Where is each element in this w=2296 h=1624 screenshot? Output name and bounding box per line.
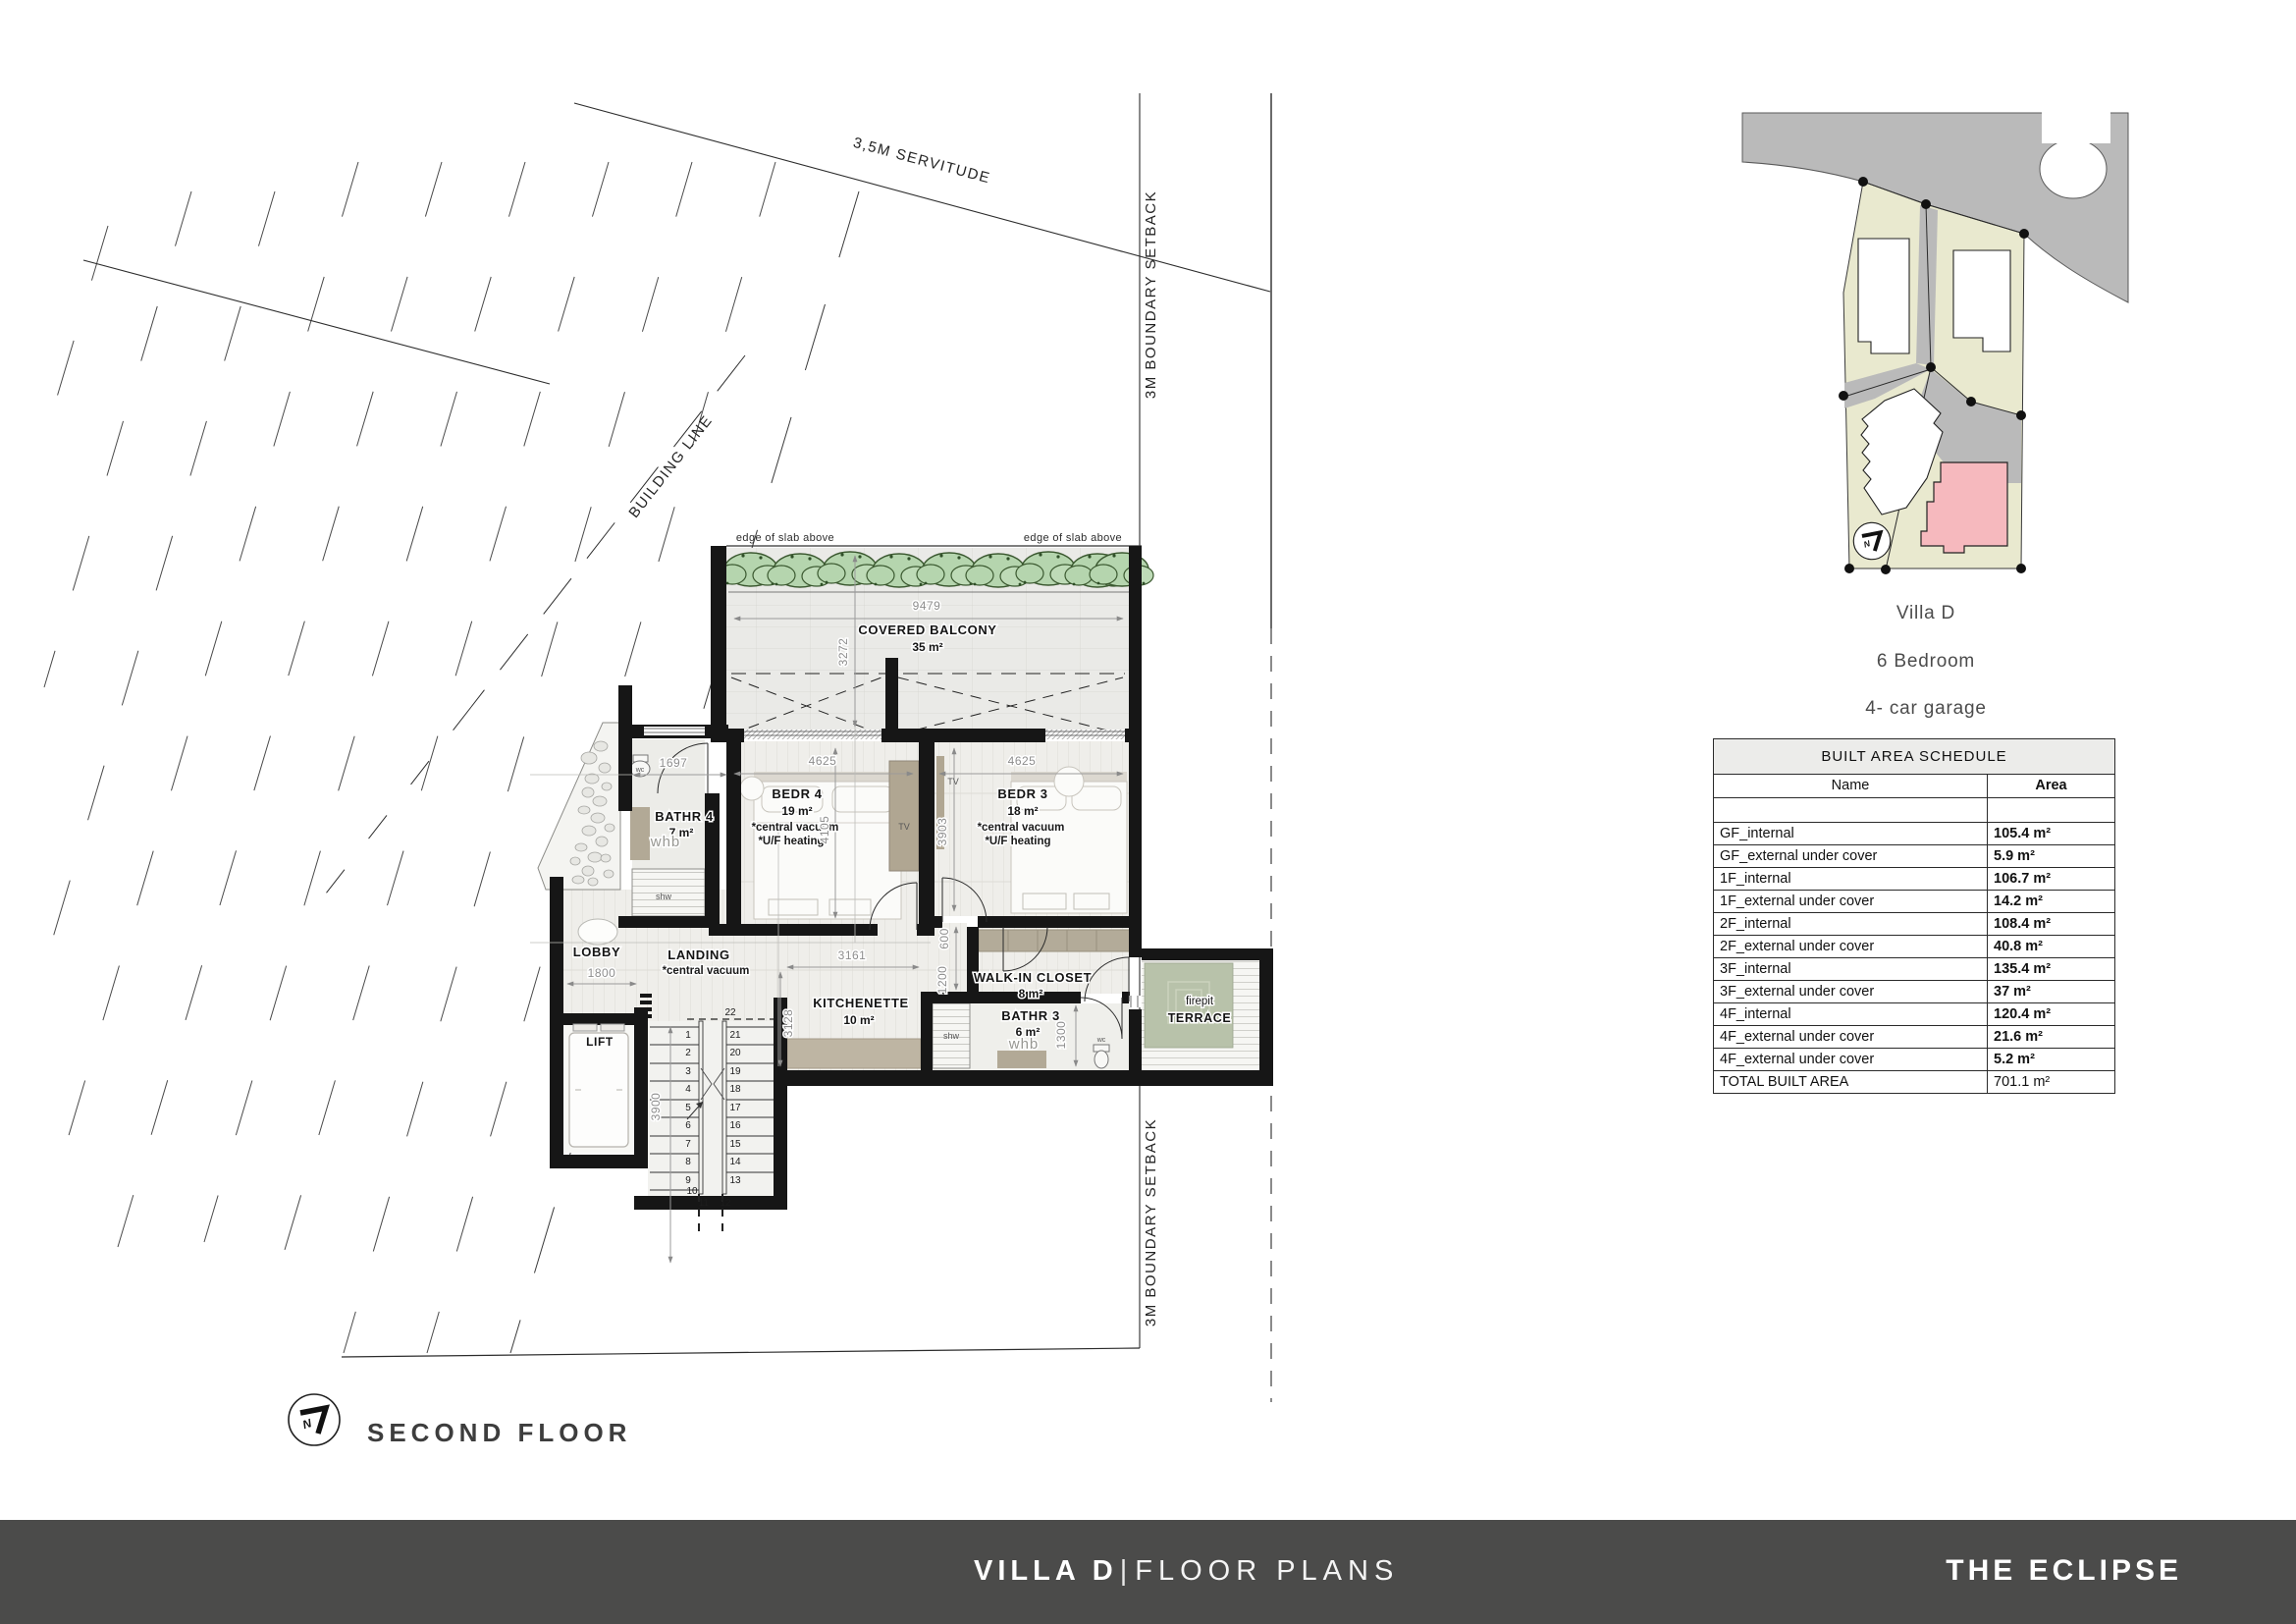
- setback-label-bottom: 3M BOUNDARY SETBACK: [1143, 1118, 1159, 1326]
- svg-text:21: 21: [729, 1030, 741, 1041]
- building-line-label: BUILDING LINE: [625, 412, 716, 521]
- setback-label-top: 3M BOUNDARY SETBACK: [1143, 190, 1159, 399]
- tv-cabinet-bedr4: [889, 761, 919, 871]
- dim-3903: 3903: [935, 818, 949, 846]
- svg-text:7: 7: [685, 1139, 691, 1150]
- bathr3-name: BATHR 3: [1001, 1008, 1060, 1023]
- svg-text:5: 5: [685, 1103, 691, 1113]
- svg-text:3: 3: [685, 1066, 691, 1077]
- landing-note: *central vacuum: [663, 965, 750, 977]
- firepit-terrace: firepit TERRACE: [1142, 960, 1259, 1070]
- footer-section: FLOOR PLANS: [1135, 1555, 1399, 1587]
- site-plan: Villa D 6 Bedroom 4- car garage: [1742, 110, 2128, 719]
- svg-text:10: 10: [686, 1186, 698, 1197]
- stone-wall: [538, 723, 620, 890]
- dim-4105: 4105: [818, 816, 831, 844]
- slab-label-left: edge of slab above: [736, 532, 834, 544]
- svg-text:wc: wc: [635, 767, 645, 774]
- north-arrow-icon: [289, 1394, 340, 1445]
- dim-4625-b3: 4625: [1008, 754, 1037, 768]
- schedule-title: BUILT AREA SCHEDULE: [1714, 739, 2115, 775]
- svg-text:13: 13: [729, 1175, 741, 1186]
- bedr3-name: BEDR 3: [997, 786, 1047, 801]
- table-row: 2F_external under cover40.8 m²: [1714, 936, 2115, 958]
- svg-text:15: 15: [729, 1139, 741, 1150]
- bedr4-name: BEDR 4: [772, 786, 822, 801]
- lobby-basin: [578, 919, 617, 945]
- bedr3-tv: TV: [947, 777, 959, 786]
- dim-1300: 1300: [1054, 1021, 1068, 1050]
- dim-3128: 3128: [781, 1009, 795, 1038]
- servitude-label: 3,5M SERVITUDE: [851, 135, 992, 188]
- svg-text:2: 2: [685, 1048, 691, 1058]
- kitchenette-name: KITCHENETTE: [813, 996, 909, 1010]
- walkin-name: WALK-IN CLOSET: [974, 970, 1092, 985]
- svg-text:18: 18: [729, 1084, 741, 1095]
- bathr3-whb: whb: [1008, 1036, 1040, 1053]
- dim-4625-b4: 4625: [809, 754, 837, 768]
- slab-label-right: edge of slab above: [1024, 532, 1122, 544]
- bathr4-name: BATHR 4: [655, 809, 714, 824]
- table-row: 3F_internal135.4 m²: [1714, 958, 2115, 981]
- balcony-area: 35 m²: [912, 640, 942, 654]
- floor-plan: edge of slab above edge of slab above fi…: [530, 532, 1273, 1263]
- table-row-total: TOTAL BUILT AREA701.1 m²: [1714, 1071, 2115, 1094]
- svg-text:6: 6: [685, 1120, 691, 1131]
- svg-text:1: 1: [685, 1030, 691, 1041]
- schedule-col-area: Area: [1988, 775, 2115, 798]
- bedr3-note2: *U/F heating: [985, 836, 1050, 847]
- bedr3-area: 18 m²: [1007, 804, 1038, 818]
- table-row: GF_internal105.4 m²: [1714, 823, 2115, 845]
- balcony-name: COVERED BALCONY: [858, 623, 996, 637]
- vanity-bathr4: [630, 807, 650, 860]
- dim-1697: 1697: [660, 756, 688, 770]
- table-row: 4F_external under cover5.2 m²: [1714, 1049, 2115, 1071]
- bedr4-note2: *U/F heating: [758, 836, 824, 847]
- dim-3272: 3272: [836, 638, 850, 667]
- site-north-arrow-icon: [1853, 522, 1890, 559]
- table-row: 1F_external under cover14.2 m²: [1714, 891, 2115, 913]
- floor-title-block: SECOND FLOOR: [289, 1394, 631, 1447]
- svg-text:14: 14: [729, 1157, 741, 1167]
- svg-text:11: 11: [699, 1198, 710, 1209]
- footer-project: VILLA D: [974, 1555, 1118, 1587]
- landing-name: LANDING: [667, 947, 729, 962]
- svg-text:12: 12: [720, 1198, 731, 1209]
- vanity-bathr3: [997, 1051, 1046, 1068]
- footer-bar: VILLA D|FLOOR PLANS THE ECLIPSE: [0, 1520, 2296, 1624]
- floor-title: SECOND FLOOR: [367, 1418, 631, 1447]
- bathr3-shw: shw: [943, 1031, 960, 1041]
- stairwell-floor: [648, 1021, 775, 1196]
- bathr4-shw: shw: [656, 892, 672, 901]
- dim-600: 600: [937, 928, 951, 949]
- kitchenette-area: 10 m²: [843, 1013, 874, 1027]
- svg-text:16: 16: [729, 1120, 741, 1131]
- table-row: 3F_external under cover37 m²: [1714, 981, 2115, 1003]
- svg-text:22: 22: [724, 1007, 736, 1018]
- svg-text:17: 17: [729, 1103, 741, 1113]
- drawing-sheet: N 3,5M SERVITUDE BUILDING LINE: [0, 0, 2296, 1624]
- footer-separator: |: [1120, 1555, 1128, 1587]
- svg-text:4: 4: [685, 1084, 691, 1095]
- kitchen-counter: [787, 1039, 921, 1068]
- bathr4-whb: whb: [650, 834, 681, 850]
- bedr4-area: 19 m²: [781, 804, 812, 818]
- planter-bushes: [719, 552, 1153, 587]
- terrace-label-2: TERRACE: [1168, 1011, 1232, 1025]
- wc-bathr4: wc: [630, 755, 650, 777]
- dim-1800: 1800: [588, 966, 616, 980]
- svg-text:20: 20: [729, 1048, 741, 1058]
- terrace-label-1: firepit: [1186, 996, 1214, 1007]
- table-row: 1F_internal106.7 m²: [1714, 868, 2115, 891]
- bedr4-tv: TV: [898, 822, 910, 832]
- site-bedroom-label: 6 Bedroom: [1877, 651, 1975, 672]
- dim-3900: 3900: [649, 1093, 663, 1121]
- bedr3-note1: *central vacuum: [978, 822, 1065, 834]
- dim-9479: 9479: [913, 599, 941, 613]
- footer-brand: THE ECLIPSE: [1946, 1554, 2182, 1588]
- site-villa-label: Villa D: [1896, 603, 1955, 623]
- footer-title: VILLA D|FLOOR PLANS: [974, 1555, 1399, 1588]
- schedule-col-name: Name: [1714, 775, 1988, 798]
- svg-text:9: 9: [685, 1175, 691, 1186]
- site-garage-label: 4- car garage: [1865, 698, 1986, 719]
- svg-text:19: 19: [729, 1066, 741, 1077]
- dim-3161: 3161: [838, 948, 867, 962]
- table-row: GF_external under cover5.9 m²: [1714, 845, 2115, 868]
- lift-name: LIFT: [586, 1035, 614, 1049]
- closet-shelving: [979, 930, 1130, 951]
- lobby-name: LOBBY: [573, 945, 621, 959]
- table-row: 4F_internal120.4 m²: [1714, 1003, 2115, 1026]
- svg-text:8: 8: [685, 1157, 691, 1167]
- built-area-schedule: BUILT AREA SCHEDULE Name Area GF_interna…: [1713, 738, 2115, 1094]
- dim-1200: 1200: [935, 966, 949, 995]
- table-row: 2F_internal108.4 m²: [1714, 913, 2115, 936]
- table-row: 4F_external under cover21.6 m²: [1714, 1026, 2115, 1049]
- walkin-area: 8 m²: [1019, 987, 1043, 1001]
- svg-text:wc: wc: [1096, 1037, 1106, 1044]
